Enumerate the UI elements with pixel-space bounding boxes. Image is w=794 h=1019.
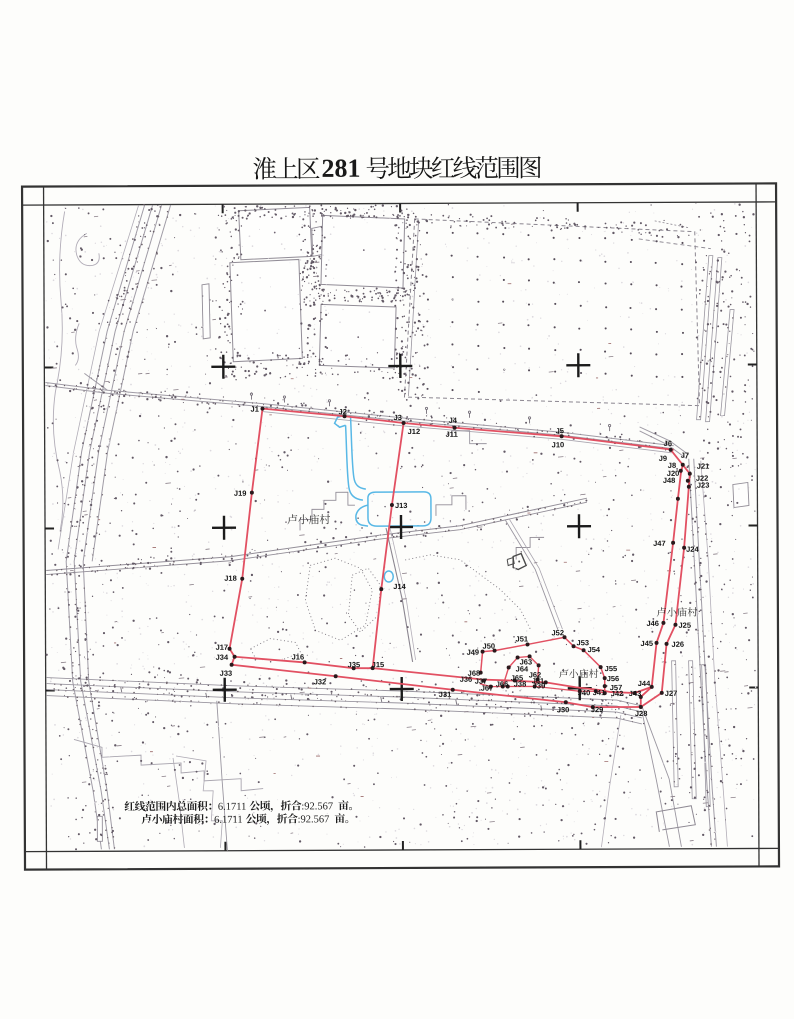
svg-text:J30: J30 bbox=[557, 705, 570, 714]
svg-text:6.1711: 6.1711 bbox=[214, 815, 243, 826]
svg-text:J67: J67 bbox=[481, 684, 494, 693]
svg-text:J54: J54 bbox=[588, 645, 601, 654]
svg-text:J18: J18 bbox=[224, 574, 237, 583]
svg-text:J66: J66 bbox=[496, 680, 509, 689]
svg-text:J47: J47 bbox=[653, 539, 666, 548]
svg-text:J16: J16 bbox=[292, 652, 305, 661]
svg-text:J52: J52 bbox=[551, 628, 564, 637]
svg-text:J33: J33 bbox=[220, 669, 233, 678]
svg-text:J56: J56 bbox=[607, 674, 620, 683]
svg-text:J6: J6 bbox=[664, 439, 672, 448]
svg-text::92.567: :92.567 bbox=[301, 801, 333, 812]
svg-text::92.567: :92.567 bbox=[298, 814, 330, 825]
svg-text:J28: J28 bbox=[635, 709, 648, 718]
svg-text:J21: J21 bbox=[697, 462, 710, 471]
svg-text:J11: J11 bbox=[446, 430, 458, 439]
svg-text:J7: J7 bbox=[681, 451, 689, 460]
svg-text:J51: J51 bbox=[516, 634, 529, 643]
svg-text:J49: J49 bbox=[467, 648, 480, 657]
svg-text:J35: J35 bbox=[348, 660, 361, 669]
svg-text:J5: J5 bbox=[556, 426, 564, 435]
svg-text:J34: J34 bbox=[216, 653, 229, 662]
svg-text:J14: J14 bbox=[393, 582, 406, 591]
svg-text:J17: J17 bbox=[216, 643, 229, 652]
svg-text:J12: J12 bbox=[408, 427, 421, 436]
svg-text:J4: J4 bbox=[449, 416, 458, 425]
svg-text:J29: J29 bbox=[591, 705, 604, 714]
svg-text:J19: J19 bbox=[234, 489, 247, 498]
svg-text:J26: J26 bbox=[672, 640, 685, 649]
svg-text:J41: J41 bbox=[593, 688, 606, 697]
svg-text:J15: J15 bbox=[372, 660, 385, 669]
svg-text:J44: J44 bbox=[638, 679, 651, 688]
svg-text:J40: J40 bbox=[578, 688, 591, 697]
svg-text:J2: J2 bbox=[339, 407, 347, 416]
svg-text:J24: J24 bbox=[686, 545, 699, 554]
svg-text:J25: J25 bbox=[678, 621, 691, 630]
svg-text:J9: J9 bbox=[659, 454, 667, 463]
svg-text:J48: J48 bbox=[663, 476, 676, 485]
svg-text:J42: J42 bbox=[611, 689, 624, 698]
svg-text:J32: J32 bbox=[314, 677, 327, 686]
svg-text:J43: J43 bbox=[629, 689, 642, 698]
svg-text:J3: J3 bbox=[394, 413, 402, 422]
svg-text:6.1711: 6.1711 bbox=[218, 802, 247, 813]
svg-text:J68: J68 bbox=[468, 669, 481, 678]
svg-text:281: 281 bbox=[321, 154, 360, 183]
svg-text:J23: J23 bbox=[697, 481, 710, 490]
svg-text:J46: J46 bbox=[646, 619, 659, 628]
svg-text:J13: J13 bbox=[395, 501, 408, 510]
svg-text:J50: J50 bbox=[483, 642, 496, 651]
svg-text:J61: J61 bbox=[532, 676, 545, 685]
svg-text:J64: J64 bbox=[516, 664, 529, 673]
svg-text:J10: J10 bbox=[552, 440, 565, 449]
svg-text:J55: J55 bbox=[605, 664, 618, 673]
svg-text:J27: J27 bbox=[665, 689, 678, 698]
svg-text:J31: J31 bbox=[439, 690, 452, 699]
svg-text:J1: J1 bbox=[250, 405, 258, 414]
svg-text:J45: J45 bbox=[641, 639, 654, 648]
svg-text:J65: J65 bbox=[511, 673, 524, 682]
